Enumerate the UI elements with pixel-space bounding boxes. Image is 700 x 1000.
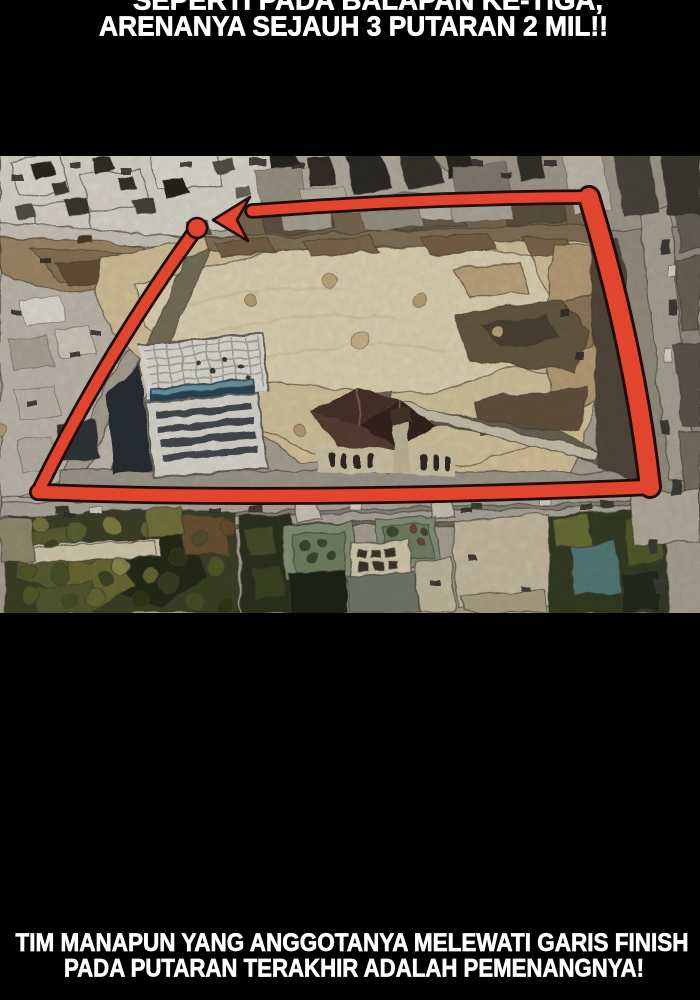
- svg-text:TIM MANAPUN YANG ANGGOTANYA ME: TIM MANAPUN YANG ANGGOTANYA MELEWATI GAR…: [16, 929, 689, 957]
- svg-text:PADA PUTARAN TERAKHIR ADALAH P: PADA PUTARAN TERAKHIR ADALAH PEMENANGNYA…: [64, 955, 644, 983]
- svg-text:ARENANYA SEJAUH 3 PUTARAN 2 MI: ARENANYA SEJAUH 3 PUTARAN 2 MIL!!: [99, 11, 608, 42]
